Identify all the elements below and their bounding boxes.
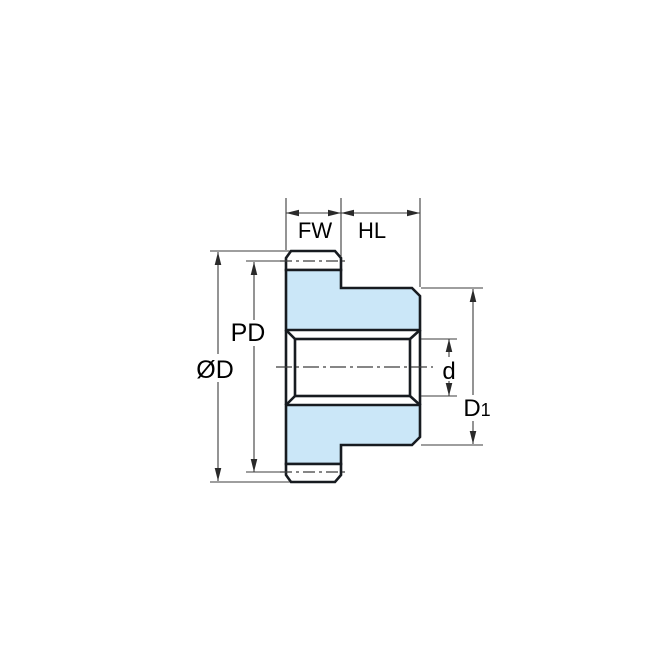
bore-d-label: d xyxy=(442,358,455,385)
bore-chamfer-top-right xyxy=(410,330,420,339)
arrow-pd-down xyxy=(251,459,258,472)
hub-d1-label-subscript: 1 xyxy=(481,400,491,420)
hub-d1-label-main: D xyxy=(463,395,480,422)
bore-chamfer-top-left xyxy=(286,330,295,339)
pd-label: PD xyxy=(231,319,266,347)
hl-label: HL xyxy=(358,218,386,243)
arrow-hl-left xyxy=(341,210,354,217)
arrow-od-down xyxy=(215,468,222,481)
arrow-fw-left xyxy=(286,210,299,217)
gear-body-lower-section xyxy=(286,405,420,464)
arrow-od-up xyxy=(215,252,222,265)
diagram-canvas: FW HL ØD PD d D1 xyxy=(0,0,670,670)
bore-chamfer-bottom-left xyxy=(286,396,295,405)
arrow-hl-right xyxy=(407,210,420,217)
bore-chamfer-bottom-right xyxy=(410,396,420,405)
arrow-fw-right xyxy=(328,210,341,217)
arrow-d1-down xyxy=(470,431,477,444)
hub-d1-label: D1 xyxy=(463,395,490,422)
od-label: ØD xyxy=(196,356,234,384)
arrow-pd-up xyxy=(251,262,258,275)
gear-dimension-diagram: FW HL ØD PD d D1 xyxy=(0,0,670,670)
tooth-tip-cap-bottom xyxy=(286,464,341,482)
arrow-d1-up xyxy=(470,289,477,302)
fw-label: FW xyxy=(298,218,332,243)
gear-body-upper-section xyxy=(286,270,420,330)
arrow-d-up xyxy=(446,339,453,352)
